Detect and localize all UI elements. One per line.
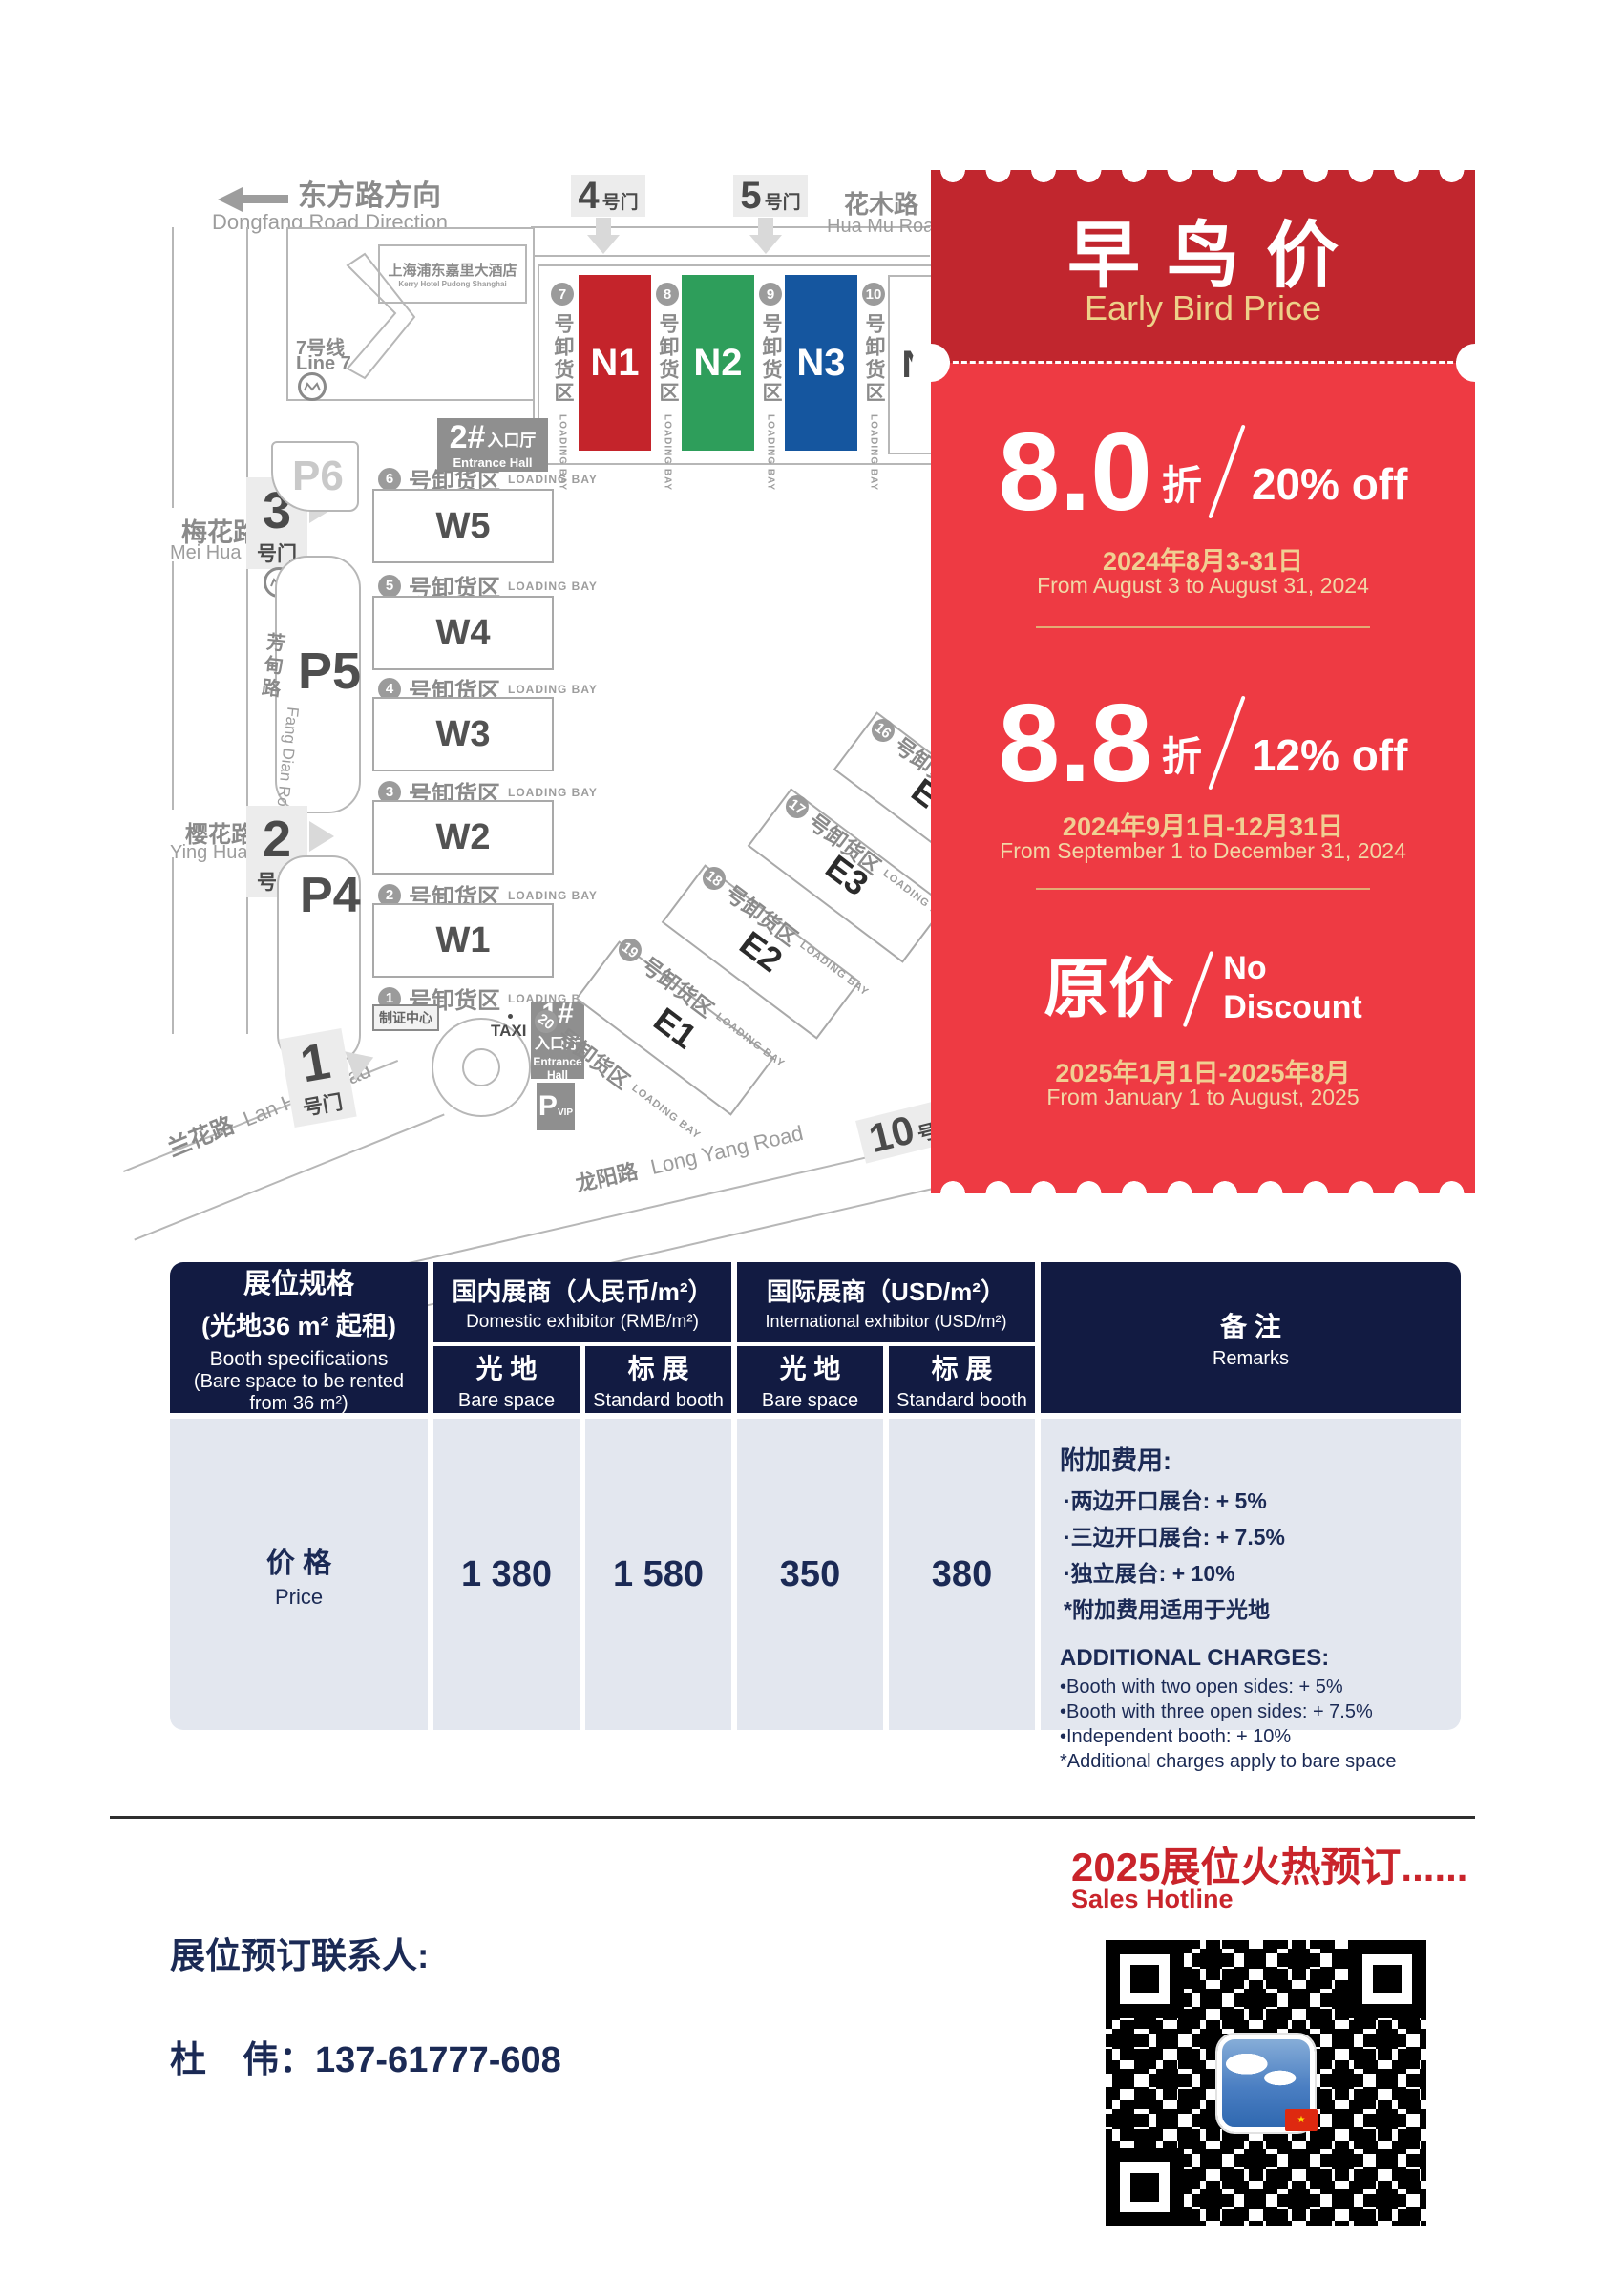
bay-6-label-en: LOADING BAY (508, 473, 598, 486)
parking-p6-label: P6 (292, 453, 344, 500)
price-domestic-std: 1 580 (585, 1419, 731, 1730)
wechat-qr-code: ★ (1096, 1930, 1436, 2236)
line7-en: Line 7 (296, 353, 351, 375)
entrance-2-number: 2# (450, 421, 486, 453)
gate-5-arrow-stem (758, 218, 773, 237)
qr-finder-top-right (1348, 1940, 1426, 2018)
hotel-name-cn: 上海浦东嘉里大酒店 (388, 260, 517, 280)
price-table: 展位规格 (光地36 m² 起租) Booth specifications (… (170, 1262, 1461, 1730)
gate-2-number: 2 (263, 813, 291, 865)
tier-2-price: 8.8 折 12% off (931, 674, 1475, 789)
flyer-page: 东方路方向 Dongfang Road Direction 梅花路 Mei Hu… (0, 0, 1624, 2278)
tier-3-off-line1: No (1223, 949, 1361, 988)
bay-20-label-en: LOADING BAY (629, 1083, 703, 1142)
tier-3-discount: 原价 (1044, 957, 1173, 1022)
bay-4-label-en: LOADING BAY (508, 683, 598, 696)
hotel-name-en: Kerry Hotel Pudong Shanghai (398, 280, 506, 288)
contact-label: 展位预订联系人: (170, 1927, 429, 1978)
parking-p5-label: P5 (298, 642, 361, 701)
gate-5-number: 5 (740, 177, 761, 215)
hall-w3: W3 (372, 697, 554, 771)
gate-1-suffix: 号门 (301, 1086, 346, 1122)
tier-3-date-en: From January 1 to August, 2025 (931, 1085, 1475, 1110)
ticket-notch-right (1456, 344, 1494, 382)
lanhua-road-cn: 兰花路 (164, 1112, 238, 1162)
left-arrow-bar (241, 195, 288, 203)
bay-9-number: 9 (759, 283, 782, 306)
remarks-cn-title: 附加费用: (1060, 1440, 1171, 1477)
intl-en: International exhibitor (USD/m²) (765, 1312, 1006, 1332)
domestic-cn: 国内展商（人民币/m²） (452, 1273, 712, 1308)
tier-2-slash (1208, 695, 1245, 790)
metro-icon (298, 372, 327, 401)
early-bird-ticket: 早鸟价 Early Bird Price 8.0 折 20% off 2024年… (931, 170, 1475, 1193)
price-intl-std: 380 (889, 1419, 1035, 1730)
bay-7-number: 7 (551, 283, 574, 306)
remarks-en-item-4: *Additional charges apply to bare space (1060, 1751, 1396, 1773)
price-intl-bare: 350 (737, 1419, 883, 1730)
footer-divider (110, 1816, 1475, 1819)
entrance-2-cn: 入口厅 (487, 432, 536, 449)
tier-3-slash (1183, 951, 1213, 1027)
tier-1-off: 20% off (1252, 458, 1408, 510)
gate-5-suffix: 号门 (765, 188, 801, 214)
ticket-notch-left (912, 344, 950, 382)
domestic-bare-cn: 光 地 (476, 1348, 538, 1386)
qr-finder-top-left (1106, 1940, 1184, 2018)
price-label-cn: 价 格 (266, 1539, 331, 1581)
bay-10-label-en: LOADING BAY (869, 414, 879, 491)
gate-4-suffix: 号门 (602, 188, 639, 214)
remarks-en-item-3: •Independent booth: + 10% (1060, 1726, 1291, 1748)
remarks-en: Remarks (1213, 1348, 1289, 1370)
tier-divider-2 (1036, 888, 1370, 890)
tier-2-date-en: From September 1 to December 31, 2024 (931, 838, 1475, 864)
left-road-upper (172, 227, 248, 508)
bay-19-number: 19 (614, 934, 646, 966)
bay-3-label-en: LOADING BAY (508, 786, 598, 799)
expo-top-boundary (533, 255, 930, 257)
bay-8-number: 8 (656, 283, 679, 306)
intl-std-en: Standard booth (896, 1390, 1027, 1412)
dongfang-road-cn: 东方路方向 (298, 172, 441, 214)
loading-bay-9: 9 号卸货区 LOADING BAY (756, 283, 785, 491)
value-domestic-bare: 1 380 (461, 1554, 552, 1595)
gate-2-arrow-icon (309, 821, 334, 852)
domestic-group-header: 国内展商（人民币/m²） Domestic exhibitor (RMB/m²) (433, 1262, 731, 1342)
ticket-title-cn: 早鸟价 (931, 197, 1475, 302)
intl-std-header: 标 展 Standard booth (889, 1346, 1035, 1413)
intl-bare-header: 光 地 Bare space (737, 1346, 883, 1413)
bay-2-label-en: LOADING BAY (508, 889, 598, 902)
domestic-std-en: Standard booth (593, 1390, 724, 1412)
tier-2-discount: 8.8 (999, 698, 1152, 789)
badge-center-box: 制证中心 (372, 1004, 439, 1031)
huamu-road-en: Hua Mu Road (827, 216, 944, 238)
qr-center-logo: ★ (1217, 2035, 1315, 2132)
hall-n2: N2 (682, 275, 754, 451)
vip-parking: PVIP (537, 1083, 575, 1130)
gate-4-arrow-stem (596, 218, 611, 237)
ticket-dashed-separator (944, 361, 1462, 364)
spec-cn2: (光地36 m² 起租) (201, 1305, 396, 1342)
remarks-cell: 附加费用: ·两边开口展台: + 5% ·三边开口展台: + 7.5% ·独立展… (1041, 1419, 1461, 1730)
intl-cn: 国际展商（USD/m²） (767, 1273, 1005, 1308)
bay-8-label-cn: 号卸货区 (653, 313, 682, 405)
spec-en1: Booth specifications (210, 1348, 389, 1371)
gate-1-number: 1 (297, 1035, 334, 1090)
price-row-label: 价 格 Price (170, 1419, 428, 1730)
tier-1-slash (1208, 424, 1245, 518)
gate-5-arrow-icon (749, 235, 782, 254)
china-flag-icon: ★ (1285, 2109, 1318, 2131)
longyang-road-cn: 龙阳路 (574, 1159, 641, 1196)
bay-6-number: 6 (378, 468, 401, 491)
left-road-lower (172, 857, 248, 1034)
entrance-1-en2: Hall (547, 1068, 568, 1082)
hall-w2: W2 (372, 800, 554, 875)
hall-n3: N3 (785, 275, 857, 451)
expo-left-boundary (533, 255, 535, 419)
value-domestic-std: 1 580 (613, 1554, 704, 1595)
remarks-header: 备 注 Remarks (1041, 1262, 1461, 1413)
tier-divider-1 (1036, 626, 1370, 628)
hall-w4: W4 (372, 596, 554, 670)
col-spec-header: 展位规格 (光地36 m² 起租) Booth specifications (… (170, 1262, 428, 1413)
tier-1-unit: 折 (1162, 453, 1202, 512)
bay-10-label-cn: 号卸货区 (859, 313, 888, 405)
tier-1-discount: 8.0 (999, 427, 1152, 517)
value-intl-std: 380 (932, 1554, 992, 1595)
domestic-bare-header: 光 地 Bare space (433, 1346, 580, 1413)
bay-5-number: 5 (378, 575, 401, 598)
remarks-cn-item-1: ·两边开口展台: + 5% (1064, 1483, 1267, 1515)
spec-en3: from 36 m²) (249, 1393, 348, 1415)
remarks-en-item-2: •Booth with three open sides: + 7.5% (1060, 1701, 1373, 1723)
bay-8-label-en: LOADING BAY (663, 414, 673, 491)
hall-w5: W5 (372, 489, 554, 563)
tier-3-off: No Discount (1223, 949, 1361, 1027)
bay-9-label-en: LOADING BAY (766, 414, 776, 491)
intl-group-header: 国际展商（USD/m²） International exhibitor (US… (737, 1262, 1035, 1342)
intl-bare-en: Bare space (762, 1390, 858, 1412)
tier-1-date-en: From August 3 to August 31, 2024 (931, 573, 1475, 599)
price-label-en: Price (275, 1585, 323, 1610)
left-arrow-icon (218, 187, 243, 212)
taxi-dot (508, 1014, 513, 1019)
intl-std-cn: 标 展 (932, 1348, 993, 1386)
remarks-en-title: ADDITIONAL CHARGES: (1060, 1645, 1329, 1672)
vip-parking-p: P (538, 1090, 558, 1122)
contact-phone: 杜 伟：137-61777-608 (170, 2030, 561, 2082)
gate-4-arrow-icon (587, 235, 620, 254)
qr-finder-bottom-left (1106, 2148, 1184, 2226)
tier-2-off: 12% off (1252, 729, 1408, 781)
domestic-std-cn: 标 展 (628, 1348, 689, 1386)
intl-bare-cn: 光 地 (780, 1348, 841, 1386)
hotline-subtitle: Sales Hotline (1071, 1885, 1234, 1914)
gate-5: 5 号门 (733, 175, 808, 217)
taxi-label: TAXI (491, 1022, 526, 1041)
spec-en2: (Bare space to be rented (194, 1371, 404, 1393)
remarks-cn-item-3: ·独立展台: + 10% (1064, 1555, 1235, 1588)
loading-bay-8: 8 号卸货区 LOADING BAY (653, 283, 682, 491)
hall-n1: N1 (579, 275, 651, 451)
value-intl-bare: 350 (780, 1554, 840, 1595)
bay-7-label-cn: 号卸货区 (548, 313, 577, 405)
gate-4-number: 4 (578, 177, 599, 215)
left-road-middle (172, 561, 248, 810)
remarks-cn-item-2: ·三边开口展台: + 7.5% (1064, 1519, 1285, 1551)
bay-10-number: 10 (862, 283, 885, 306)
loading-bay-7: 7 号卸货区 LOADING BAY (548, 283, 577, 491)
roundabout-inner (462, 1048, 500, 1086)
ticket-title-en: Early Bird Price (931, 288, 1475, 328)
badge-center-label: 制证中心 (379, 1008, 432, 1027)
tier-3-price: 原价 No Discount (931, 943, 1475, 1035)
gate-10-number: 10 (865, 1109, 917, 1159)
vip-parking-sub: VIP (558, 1107, 573, 1118)
spec-cn1: 展位规格 (243, 1261, 354, 1301)
loading-bay-10: 10 号卸货区 LOADING BAY (859, 283, 888, 491)
tier-3-off-line2: Discount (1223, 988, 1361, 1027)
tier-1-price: 8.0 折 20% off (931, 403, 1475, 517)
remarks-cn: 备 注 (1220, 1306, 1281, 1344)
bay-9-label-cn: 号卸货区 (756, 313, 785, 405)
hotel-block: 上海浦东嘉里大酒店 Kerry Hotel Pudong Shanghai 7号… (286, 227, 535, 401)
bay-5-label-en: LOADING BAY (508, 580, 598, 593)
remarks-en-item-1: •Booth with two open sides: + 5% (1060, 1677, 1343, 1698)
remarks-cn-item-4: *附加费用适用于光地 (1064, 1592, 1270, 1624)
hall-w1: W1 (372, 903, 554, 978)
price-domestic-bare: 1 380 (433, 1419, 580, 1730)
gate-4: 4 号门 (571, 175, 645, 217)
domestic-en: Domestic exhibitor (RMB/m²) (466, 1312, 699, 1333)
domestic-std-header: 标 展 Standard booth (585, 1346, 731, 1413)
parking-p4-label: P4 (300, 867, 361, 924)
tier-2-unit: 折 (1162, 725, 1202, 783)
hotel-label-box: 上海浦东嘉里大酒店 Kerry Hotel Pudong Shanghai (378, 244, 527, 304)
domestic-bare-en: Bare space (458, 1390, 555, 1412)
expo-map: 东方路方向 Dongfang Road Direction 梅花路 Mei Hu… (0, 0, 974, 1222)
